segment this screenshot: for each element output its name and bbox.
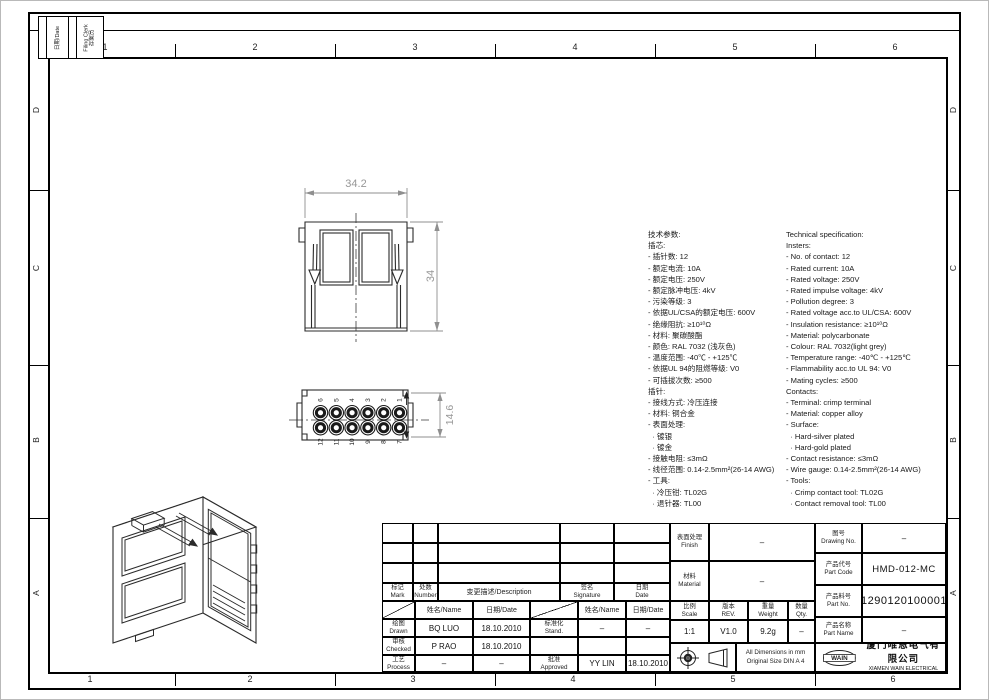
part-code-label: 产品代号Part Code: [815, 553, 862, 585]
front-width-dim: 34.2: [345, 178, 366, 190]
revision-cell: [438, 563, 560, 583]
part-no-value: 1290120100001: [862, 585, 946, 617]
process-date: –: [473, 655, 530, 672]
zone-tick: [655, 672, 656, 686]
empty-cell: [578, 637, 626, 655]
stamp-date-label: 日期/Date: [55, 25, 61, 49]
spec-line-en: - Mating cycles: ≥500: [786, 375, 954, 386]
revision-cell: [614, 563, 670, 583]
front-view: 34.2 34: [280, 168, 460, 363]
zone-tick: [946, 518, 961, 519]
svg-text:3: 3: [365, 398, 372, 402]
revision-cell: [413, 543, 438, 563]
zone-tick: [28, 190, 48, 191]
zone-label: 1: [80, 674, 100, 684]
zone-label: D: [948, 103, 962, 117]
approved-name: YY LIN: [578, 655, 626, 672]
revision-cell: [382, 563, 413, 583]
revision-cell: [560, 563, 614, 583]
zone-tick: [815, 44, 816, 57]
drawing-no-value: –: [862, 523, 946, 553]
zone-label: 5: [725, 42, 745, 52]
zone-tick: [28, 518, 48, 519]
zone-label: B: [31, 433, 45, 447]
diagonal-cell: [530, 601, 578, 619]
zone-tick: [335, 44, 336, 57]
diagonal-cell: [382, 601, 415, 619]
part-no-label: 产品料号Part No.: [815, 585, 862, 617]
zone-tick: [175, 44, 176, 57]
revision-cell: [560, 523, 614, 543]
zone-label: 2: [240, 674, 260, 684]
spec-line-en: - Surface:: [786, 419, 954, 430]
checked-label: 审核Checked: [382, 637, 415, 655]
spec-line-en: - Material: polycarbonate: [786, 330, 954, 341]
rev-value: V1.0: [709, 620, 748, 643]
svg-text:5: 5: [333, 398, 340, 402]
revision-cell: [382, 543, 413, 563]
revision-cell: [614, 523, 670, 543]
spec-line-cn: - 表面处理:: [648, 419, 784, 430]
spec-line-en: - Rated voltage: 250V: [786, 274, 954, 285]
spec-line-cn: - 额定电压: 250V: [648, 274, 784, 285]
spec-line-en: - Rated voltage acc.to UL/CSA: 600V: [786, 307, 954, 318]
zone-label: 3: [403, 674, 423, 684]
dimension-note: All Dimensions in mmOriginal Size DIN A …: [736, 643, 815, 672]
rev-label: 版本REV.: [709, 601, 748, 620]
spec-line-en: - Rated current: 10A: [786, 263, 954, 274]
name-header: 姓名/Name: [415, 601, 473, 619]
spec-line-en: · Contact removal tool: TL00: [786, 498, 954, 509]
spec-line-en: Contacts:: [786, 386, 954, 397]
spec-line-en: - Pollution degree: 3: [786, 296, 954, 307]
front-window-right: [359, 230, 392, 285]
svg-text:8: 8: [381, 440, 388, 444]
standardization-label: 标准化Stand.: [530, 619, 578, 637]
spec-line-en: - Material: copper alloy: [786, 408, 954, 419]
weight-value: 9.2g: [748, 620, 788, 643]
zone-label: 6: [883, 674, 903, 684]
zone-label: 5: [723, 674, 743, 684]
checked-date: 18.10.2010: [473, 637, 530, 655]
scale-value: 1:1: [670, 620, 709, 643]
revision-cell: [438, 543, 560, 563]
revision-cell: [560, 543, 614, 563]
spec-line-cn: · 镀金: [648, 442, 784, 453]
spec-line-en: - No. of contact: 12: [786, 251, 954, 262]
zone-tick: [28, 365, 48, 366]
dimension-lines: [305, 188, 443, 331]
finish-label: 表面处理Finish: [670, 523, 709, 561]
spec-line-cn: - 额定电流: 10A: [648, 263, 784, 274]
spec-line-en: Technical specification:: [786, 229, 954, 240]
part-name-label: 产品名称Part Name: [815, 617, 862, 643]
spec-line-cn: - 线径范围: 0.14-2.5mm²(26-14 AWG): [648, 464, 784, 475]
svg-text:6: 6: [318, 398, 325, 402]
spec-line-cn: - 绝缘阻抗: ≥10¹⁰Ω: [648, 319, 784, 330]
spec-line-cn: - 污染等级: 3: [648, 296, 784, 307]
spec-line-en: - Flammability acc.to UL 94: V0: [786, 363, 954, 374]
dimension-arrows: [305, 190, 440, 331]
approved-label: 批准Approved: [530, 655, 578, 672]
spec-line-en: - Insulation resistance: ≥10¹⁰Ω: [786, 319, 954, 330]
first-angle-projection-icon: [709, 649, 727, 667]
qty-label: 数量Qty.: [788, 601, 815, 620]
stamp-clerk-label: Filing Clerk存案员: [84, 24, 97, 52]
part-code-value: HMD-012-MC: [862, 553, 946, 585]
top-margin-line: [28, 30, 961, 31]
pinout-height-dim: 14.6: [444, 405, 456, 426]
latch-left: [313, 244, 314, 270]
spec-line-cn: - 工具:: [648, 475, 784, 486]
scale-label: 比例Scale: [670, 601, 709, 620]
spec-line-cn: - 颜色: RAL 7032 (浅灰色): [648, 341, 784, 352]
spec-line-cn: · 冷压钳: TL02G: [648, 487, 784, 498]
svg-text:9: 9: [365, 440, 372, 444]
zone-label: C: [31, 261, 45, 275]
company-names: 厦门唯恩电气有限公司 XIAMEN WAIN ELECTRICAL CO.LTD: [862, 643, 945, 672]
zone-label: 2: [245, 42, 265, 52]
datum-target-icon: [677, 647, 699, 669]
approved-date: 18.10.2010: [626, 655, 670, 672]
stamp-cell-date: 日期/Date: [46, 16, 70, 59]
pin-numbers: 6 5 4 3 2 1 12 11 10 9 8 7: [318, 398, 404, 446]
zone-tick: [175, 672, 176, 686]
zone-label: 4: [565, 42, 585, 52]
material-label: 材料Material: [670, 561, 709, 601]
date-header: 日期Date: [614, 583, 670, 601]
wain-logo-text: WAIN: [831, 655, 848, 662]
specs-chinese: 技术参数:插芯:- 插针数: 12- 额定电流: 10A- 额定电压: 250V…: [648, 229, 784, 509]
description-header: 变更描述/Description: [438, 583, 560, 601]
standardization-name: –: [578, 619, 626, 637]
number-header: 处数Number: [413, 583, 438, 601]
spec-line-en: - Wire gauge: 0.14-2.5mm²(26-14 AWG): [786, 464, 954, 475]
stamp-cell-clerk: Filing Clerk存案员: [76, 16, 104, 59]
spec-line-en: · Hard-gold plated: [786, 442, 954, 453]
svg-text:11: 11: [333, 438, 340, 445]
zone-label: D: [31, 103, 45, 117]
drawing-no-label: 图号Drawing No.: [815, 523, 862, 553]
name-header: 姓名/Name: [578, 601, 626, 619]
qty-value: –: [788, 620, 815, 643]
spec-line-cn: - 依据UL/CSA的额定电压: 600V: [648, 307, 784, 318]
company-name-en: XIAMEN WAIN ELECTRICAL CO.LTD: [862, 666, 945, 672]
front-height-dim: 34: [425, 270, 437, 282]
spec-line-en: · Hard-silver plated: [786, 431, 954, 442]
date-header: 日期/Date: [626, 601, 670, 619]
svg-text:10: 10: [349, 438, 356, 446]
spec-line-cn: 技术参数:: [648, 229, 784, 240]
pinout-view: 6 5 4 3 2 1 12 11 10 9 8 7 14.6: [283, 385, 458, 463]
spec-line-cn: 插针:: [648, 386, 784, 397]
spec-line-cn: - 材料: 聚碳酸酯: [648, 330, 784, 341]
finish-value: –: [709, 523, 815, 561]
specs-english: Technical specification:Insters:- No. of…: [786, 229, 954, 509]
svg-text:7: 7: [397, 440, 404, 444]
spec-line-en: - Temperature range: -40℃ - +125℃: [786, 352, 954, 363]
spec-line-cn: · 镀银: [648, 431, 784, 442]
drawn-label: 绘图Drawn: [382, 619, 415, 637]
spec-line-cn: · 退针器: TL00: [648, 498, 784, 509]
spec-line-cn: - 温度范围: -40℃ - +125℃: [648, 352, 784, 363]
weight-label: 重量Weight: [748, 601, 788, 620]
zone-tick: [815, 672, 816, 686]
zone-tick: [495, 672, 496, 686]
spec-line-en: · Crimp contact tool: TL02G: [786, 487, 954, 498]
svg-text:1: 1: [397, 398, 404, 402]
svg-text:12: 12: [318, 438, 325, 446]
latch-right: [399, 244, 400, 270]
revision-cell: [382, 523, 413, 543]
isometric-view: [93, 465, 283, 665]
checked-name: P RAO: [415, 637, 473, 655]
projection-symbols: [670, 643, 736, 672]
spec-line-en: - Terminal: crimp terminal: [786, 397, 954, 408]
standardization-date: –: [626, 619, 670, 637]
spec-line-cn: - 接触电阻: ≤3mΩ: [648, 453, 784, 464]
process-name: –: [415, 655, 473, 672]
zone-label: 4: [563, 674, 583, 684]
signature-header: 签名Signature: [560, 583, 614, 601]
zone-tick: [655, 44, 656, 57]
empty-cell: [626, 637, 670, 655]
spec-line-cn: 插芯:: [648, 240, 784, 251]
spec-line-cn: - 材料: 铜合金: [648, 408, 784, 419]
zone-tick: [946, 190, 961, 191]
revision-cell: [413, 563, 438, 583]
projection-symbols-graphic: [672, 645, 734, 671]
spec-line-cn: - 插针数: 12: [648, 251, 784, 262]
spec-line-en: - Contact resistance: ≤3mΩ: [786, 453, 954, 464]
revision-cell: [413, 523, 438, 543]
mark-header: 标记Mark: [382, 583, 413, 601]
spec-line-cn: - 依据UL 94的阻燃等级: V0: [648, 363, 784, 374]
svg-text:2: 2: [381, 398, 388, 402]
empty-cell: [530, 637, 578, 655]
zone-tick: [335, 672, 336, 686]
wain-logo: WAIN: [822, 646, 857, 670]
spec-line-cn: - 可插拔次数: ≥500: [648, 375, 784, 386]
svg-text:4: 4: [349, 398, 356, 402]
drawn-name: BQ LUO: [415, 619, 473, 637]
revision-cell: [614, 543, 670, 563]
part-name-value: –: [862, 617, 946, 643]
drawn-date: 18.10.2010: [473, 619, 530, 637]
zone-label: 3: [405, 42, 425, 52]
company-name-cn: 厦门唯恩电气有限公司: [862, 643, 945, 665]
spec-line-en: - Rated impulse voltage: 4kV: [786, 285, 954, 296]
front-window-left: [320, 230, 353, 285]
date-header: 日期/Date: [473, 601, 530, 619]
spec-line-cn: - 额定脉冲电压: 4kV: [648, 285, 784, 296]
spec-line-en: - Tools:: [786, 475, 954, 486]
spec-line-en: Insters:: [786, 240, 954, 251]
company-cell: WAIN 厦门唯恩电气有限公司 XIAMEN WAIN ELECTRICAL C…: [815, 643, 946, 672]
zone-label: A: [31, 586, 45, 600]
zone-label: A: [948, 586, 962, 600]
material-value: –: [709, 561, 815, 601]
revision-cell: [438, 523, 560, 543]
process-label: 工艺Process: [382, 655, 415, 672]
spec-line-cn: - 接线方式: 冷压连接: [648, 397, 784, 408]
drawing-sheet: 1 2 3 4 5 6 1 2 3 4 5 6 D C B A D C B A …: [0, 0, 989, 700]
zone-tick: [495, 44, 496, 57]
spec-line-en: - Colour: RAL 7032(light grey): [786, 341, 954, 352]
zone-label: 6: [885, 42, 905, 52]
